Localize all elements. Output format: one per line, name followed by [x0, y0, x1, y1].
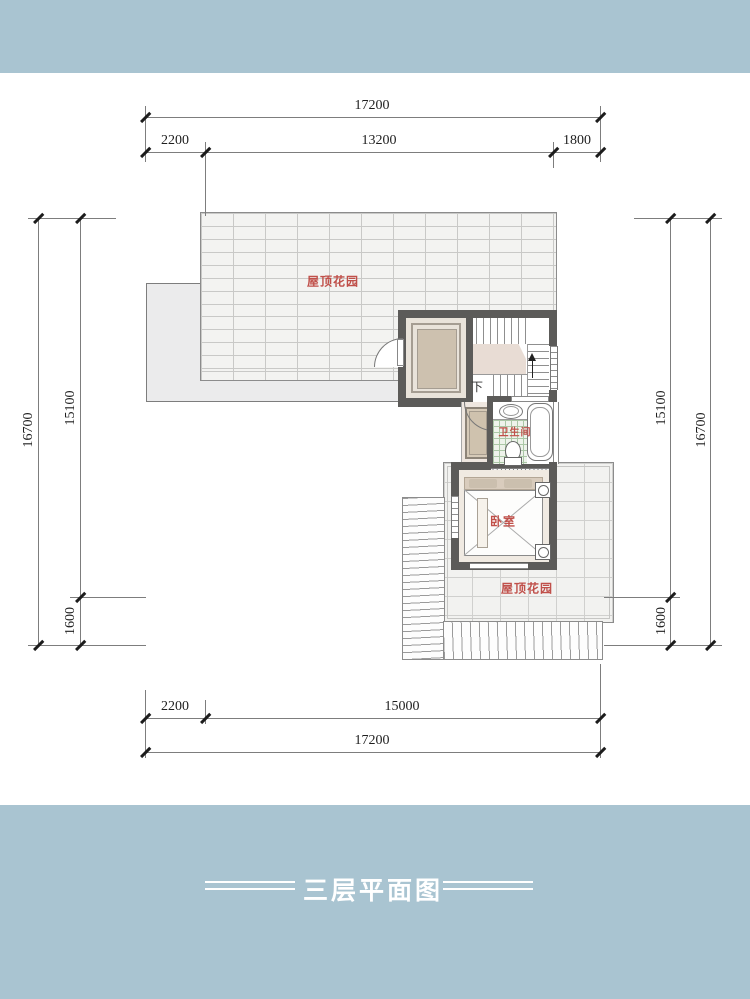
elevator-cab-inner — [417, 329, 457, 389]
lamp-top-icon — [538, 485, 549, 496]
dim-right-segments-line — [670, 218, 671, 645]
dim-bottom-overall: 17200 — [342, 733, 402, 749]
stair-window — [550, 346, 558, 390]
dim-bottom-segments-line — [145, 718, 600, 719]
dim-right-overall-line — [710, 218, 711, 645]
bedroom-label: 卧室 — [490, 513, 516, 530]
bedroom-left-window — [451, 496, 459, 538]
pillow-right-icon — [504, 479, 532, 488]
roof-garden-bottom-label: 屋顶花园 — [501, 580, 553, 597]
bathroom-top-window — [511, 396, 549, 402]
dim-bottom-overall-line — [145, 752, 600, 753]
stair-flight-bottom — [493, 374, 527, 398]
bathroom-right-window — [553, 402, 559, 464]
title-rule-right-bottom — [443, 888, 533, 890]
stair-landing — [473, 344, 526, 374]
dim-top-overall: 17200 — [342, 98, 402, 114]
stair-arrow-stem — [532, 360, 533, 378]
stair-direction-arrow-icon — [528, 353, 536, 361]
ext-left-1 — [28, 218, 116, 219]
dim-right-seg1: 15100 — [655, 385, 669, 431]
ext-bottom-1 — [145, 690, 146, 758]
roof-garden-top-label: 屋顶花园 — [307, 273, 359, 290]
dim-top-overall-line — [145, 117, 600, 118]
hall-bottom-wall — [398, 398, 470, 407]
dim-top-seg2: 13200 — [349, 133, 409, 149]
door-leaf-garden — [397, 339, 404, 366]
stair-flight-top — [476, 318, 528, 344]
dim-top-segments-line — [145, 152, 600, 153]
ext-bottom-3 — [600, 664, 601, 758]
footer-band: 三层平面图 — [0, 805, 750, 999]
bed-runner — [477, 498, 488, 548]
roof-garden-top-left — [200, 312, 404, 381]
title-rule-right-top — [443, 881, 533, 883]
top-band — [0, 0, 750, 73]
ext-left-3 — [28, 645, 146, 646]
toilet-tank-icon — [504, 457, 522, 466]
dim-top-seg1: 2200 — [150, 133, 200, 149]
bathroom-label: 卫生间 — [499, 424, 532, 439]
sink-basin-icon — [503, 406, 519, 416]
dim-left-seg1: 15100 — [64, 385, 78, 431]
dim-right-overall: 16700 — [695, 407, 709, 453]
pillow-left-icon — [469, 479, 497, 488]
stair-down-label: 下 — [471, 378, 483, 395]
stair-right-wall-upper — [549, 310, 557, 346]
nightstand-bottom-icon — [535, 544, 551, 560]
dim-bottom-seg1: 2200 — [150, 699, 200, 715]
vanity-edge — [493, 419, 527, 420]
stair-divider-h — [473, 374, 527, 375]
ext-bottom-2 — [205, 700, 206, 724]
lamp-bottom-icon — [538, 547, 549, 558]
pergola-left-strip — [402, 497, 445, 660]
dim-left-seg2: 1600 — [64, 598, 78, 644]
dim-right-seg2: 1600 — [655, 598, 669, 644]
dim-top-seg3: 1800 — [552, 133, 602, 149]
stair-top-wall — [398, 310, 557, 318]
dim-bottom-seg2: 15000 — [372, 699, 432, 715]
nightstand-top-icon — [535, 482, 551, 498]
roof-garden-top-upper — [200, 212, 557, 313]
dim-left-overall-line — [38, 218, 39, 645]
bedroom-bottom-window — [470, 563, 528, 569]
dim-left-overall: 16700 — [22, 407, 36, 453]
dim-left-segments-line — [80, 218, 81, 645]
pergola-bottom-strip — [443, 621, 603, 660]
bathtub-inner-icon — [530, 407, 550, 457]
ext-right-3 — [604, 645, 722, 646]
floor-plan-page: 三层平面图 下 — [0, 0, 750, 999]
